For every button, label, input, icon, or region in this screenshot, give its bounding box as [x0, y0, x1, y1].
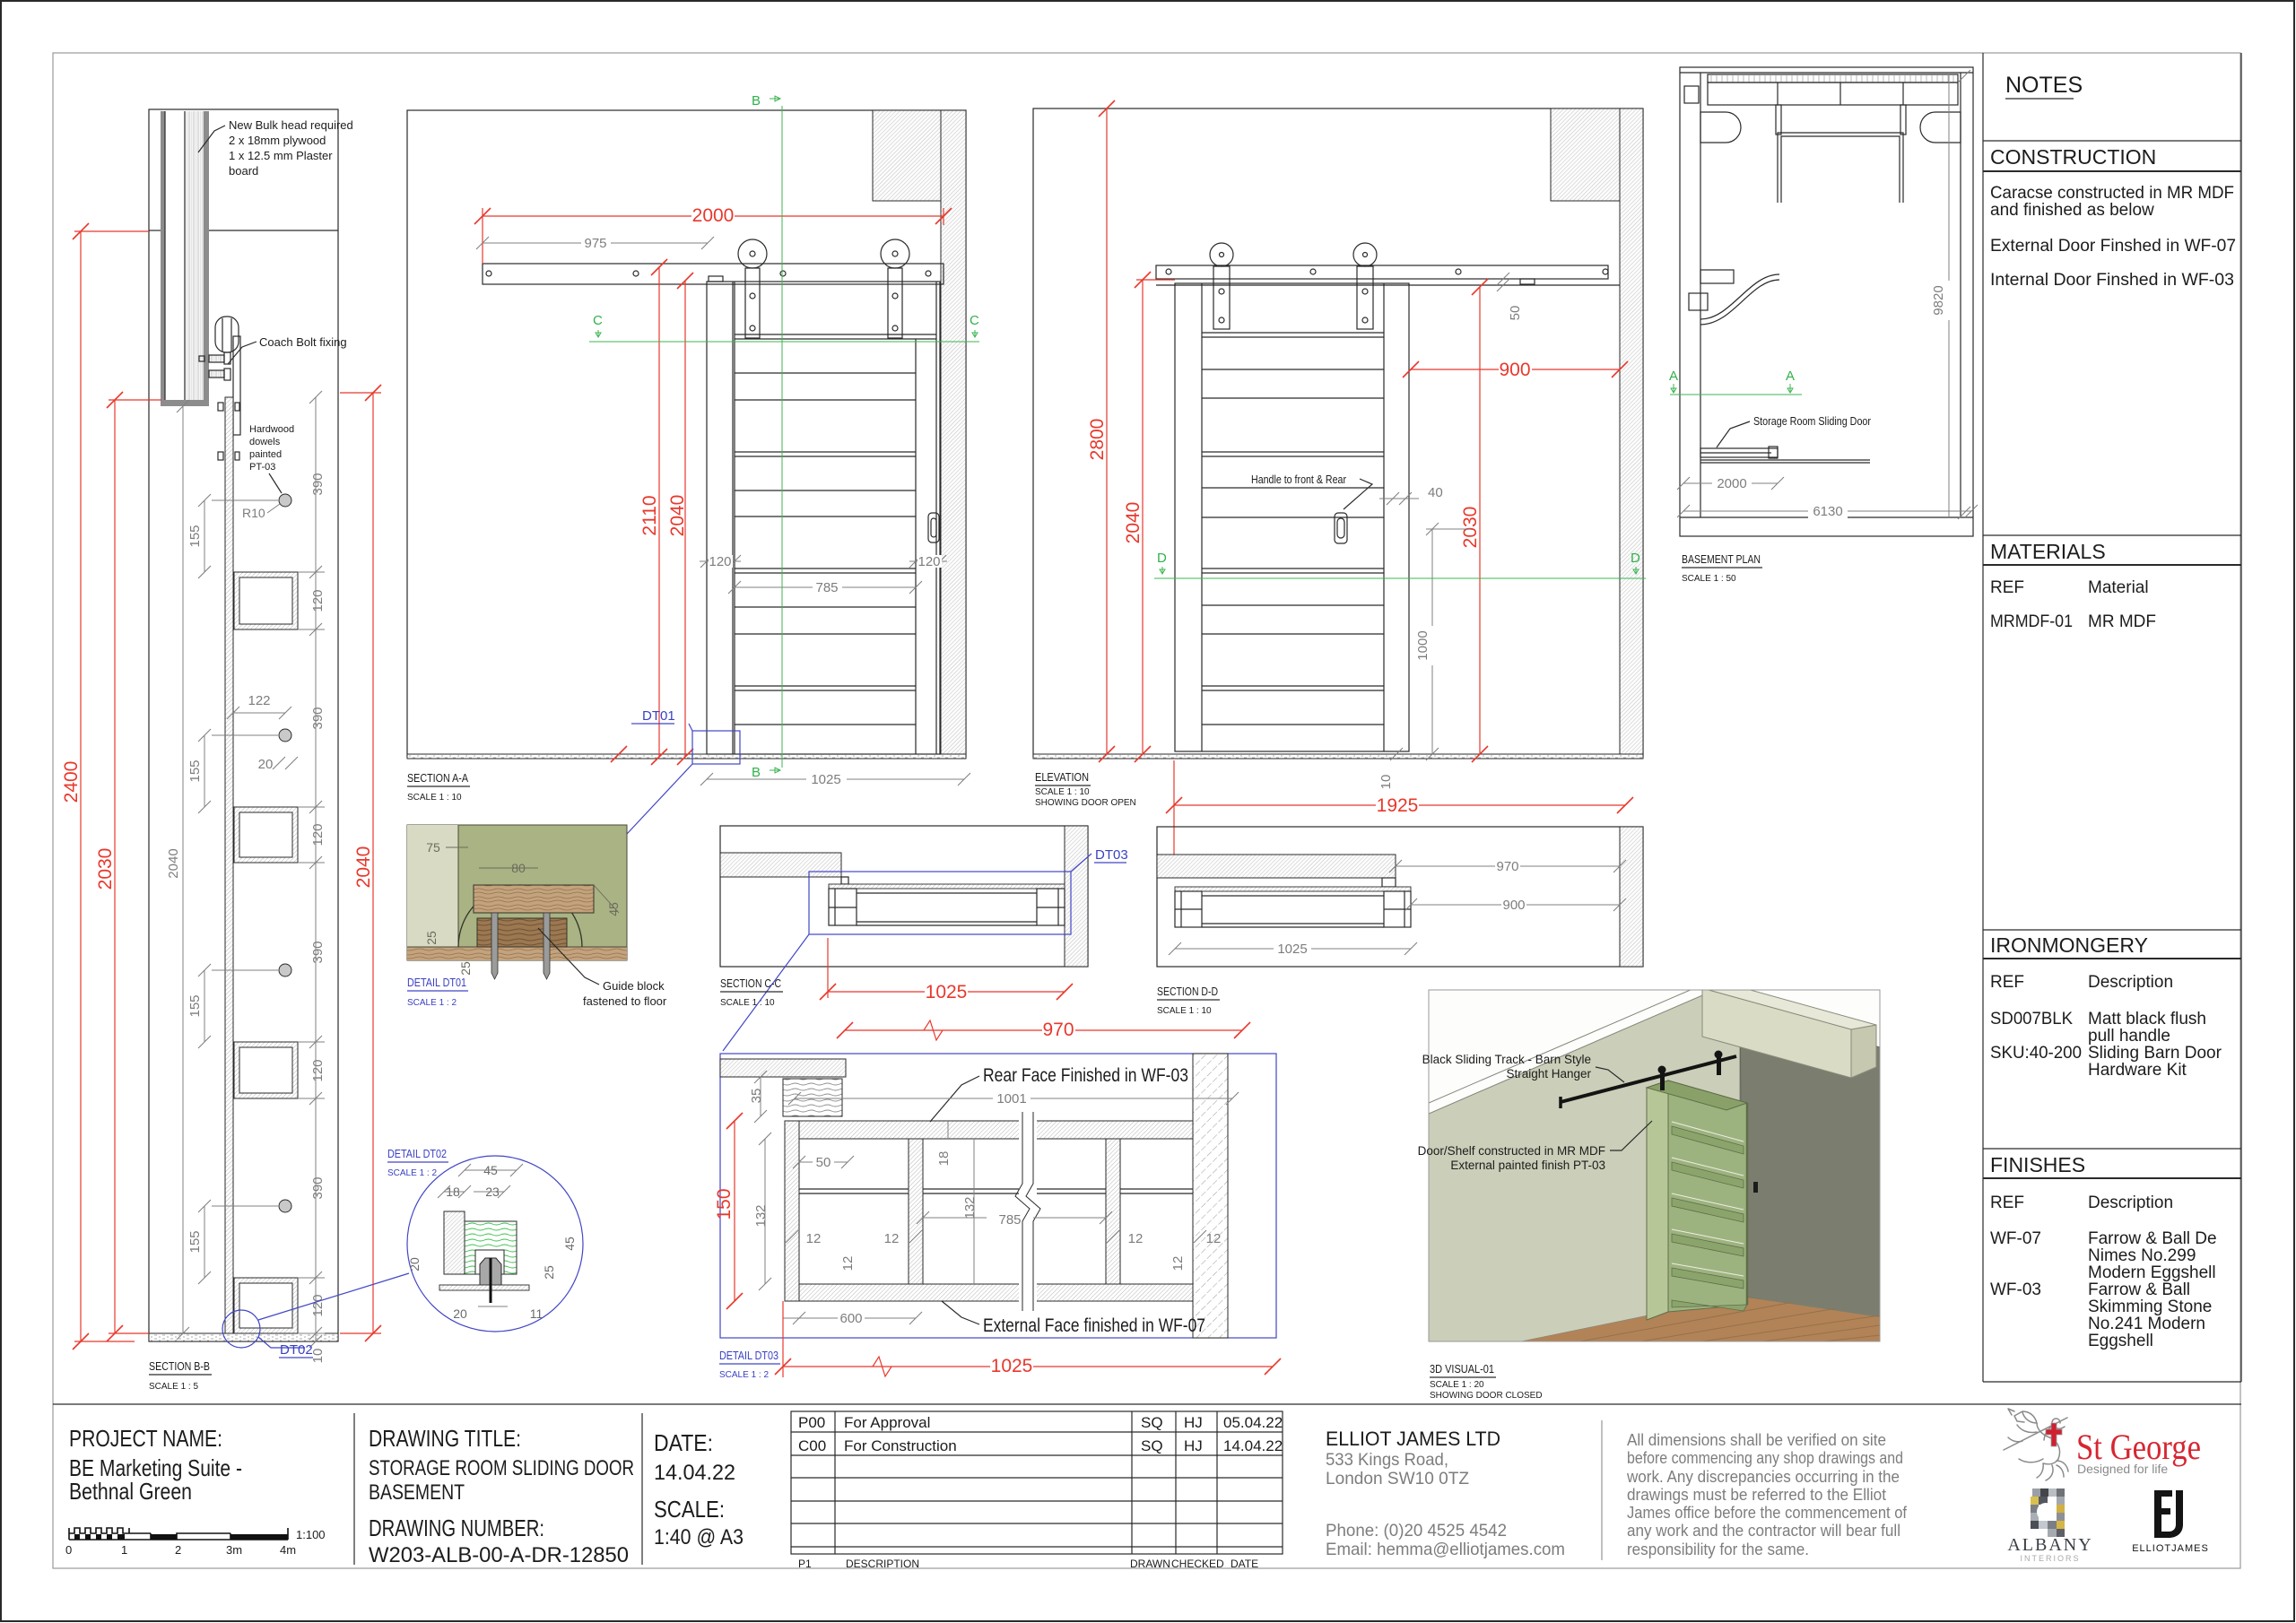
svg-text:pull handle: pull handle — [2088, 1027, 2170, 1046]
svg-text:and finished as below: and finished as below — [1990, 201, 2154, 220]
svg-text:2030: 2030 — [1460, 507, 1481, 549]
svg-text:1025: 1025 — [811, 772, 840, 787]
svg-text:Bethnal Green: Bethnal Green — [69, 1478, 192, 1505]
svg-text:SQ: SQ — [1141, 1414, 1163, 1431]
svg-text:responsibility for the same.: responsibility for the same. — [1627, 1540, 1809, 1558]
svg-text:DETAIL DT01: DETAIL DT01 — [407, 976, 466, 989]
svg-text:INTERIORS: INTERIORS — [2020, 1554, 2080, 1563]
svg-text:6130: 6130 — [1813, 504, 1842, 519]
svg-text:A: A — [1669, 369, 1678, 384]
svg-text:SCALE:: SCALE: — [654, 1496, 725, 1523]
svg-text:390: 390 — [310, 1176, 326, 1199]
svg-text:Coach Bolt fixing: Coach Bolt fixing — [259, 335, 347, 349]
svg-text:120: 120 — [310, 589, 326, 612]
svg-text:Email: hemma@elliotjames.com: Email: hemma@elliotjames.com — [1326, 1540, 1565, 1559]
svg-text:1:100: 1:100 — [296, 1528, 326, 1541]
svg-text:150: 150 — [714, 1188, 735, 1219]
svg-text:Material: Material — [2088, 578, 2149, 597]
svg-text:London SW10 0TZ: London SW10 0TZ — [1326, 1469, 1469, 1488]
svg-text:14.04.22: 14.04.22 — [654, 1461, 735, 1485]
svg-text:3D VISUAL-01: 3D VISUAL-01 — [1430, 1363, 1494, 1376]
svg-text:CONSTRUCTION: CONSTRUCTION — [1990, 145, 2156, 169]
svg-text:155: 155 — [187, 994, 203, 1017]
svg-text:BASEMENT: BASEMENT — [369, 1480, 465, 1505]
svg-text:SECTION D-D: SECTION D-D — [1157, 985, 1218, 998]
svg-text:25: 25 — [542, 1265, 556, 1280]
svg-text:2040: 2040 — [353, 846, 374, 889]
svg-text:REF: REF — [1990, 1193, 2024, 1212]
svg-text:Storage Room Sliding Door: Storage Room Sliding Door — [1753, 414, 1872, 428]
svg-text:Caracse constructed in MR MDF: Caracse constructed in MR MDF — [1990, 184, 2234, 203]
svg-text:SCALE 1 : 50: SCALE 1 : 50 — [1682, 574, 1736, 584]
svg-text:785: 785 — [998, 1212, 1021, 1228]
svg-text:WF-07: WF-07 — [1990, 1229, 2041, 1248]
svg-text:12: 12 — [1128, 1231, 1144, 1246]
svg-text:painted: painted — [249, 449, 282, 460]
svg-text:1 x 12.5 mm Plaster: 1 x 12.5 mm Plaster — [229, 149, 333, 162]
svg-text:For Approval: For Approval — [844, 1414, 930, 1431]
svg-text:MATERIALS: MATERIALS — [1990, 540, 2106, 563]
svg-text:970: 970 — [1496, 859, 1518, 874]
svg-text:2040: 2040 — [1123, 502, 1144, 544]
svg-text:390: 390 — [310, 941, 326, 963]
svg-text:155: 155 — [187, 525, 203, 547]
svg-text:DETAIL DT02: DETAIL DT02 — [387, 1148, 447, 1160]
svg-text:fastened to floor: fastened to floor — [583, 994, 667, 1008]
svg-text:Door/Shelf constructed in MR M: Door/Shelf constructed in MR MDF — [1418, 1144, 1605, 1158]
svg-text:work. Any discrepancies occurr: work. Any discrepancies occurring in the — [1626, 1467, 1900, 1486]
svg-text:1025: 1025 — [1277, 942, 1307, 957]
svg-text:18: 18 — [936, 1151, 952, 1167]
svg-text:Phone: (0)20 4525 4542: Phone: (0)20 4525 4542 — [1326, 1521, 1507, 1541]
svg-text:SECTION C-C: SECTION C-C — [720, 977, 781, 990]
svg-text:For Construction: For Construction — [844, 1437, 957, 1454]
svg-text:NOTES: NOTES — [2005, 73, 2083, 98]
svg-text:A: A — [1786, 369, 1795, 384]
svg-text:2000: 2000 — [1717, 476, 1746, 491]
svg-text:2040: 2040 — [166, 848, 181, 878]
svg-text:12: 12 — [806, 1231, 822, 1246]
svg-text:DRAWING NUMBER:: DRAWING NUMBER: — [369, 1515, 544, 1541]
svg-text:REF: REF — [1990, 973, 2024, 992]
svg-text:Farrow & Ball De: Farrow & Ball De — [2088, 1229, 2217, 1248]
svg-text:D: D — [1631, 551, 1640, 566]
svg-text:SCALE 1 : 20: SCALE 1 : 20 — [1430, 1380, 1484, 1390]
svg-text:before commencing any shop dra: before commencing any shop drawings and — [1627, 1448, 1903, 1467]
svg-text:2030: 2030 — [95, 848, 116, 890]
svg-text:40: 40 — [1428, 485, 1443, 500]
svg-text:Rear Face Finished in WF-03: Rear Face Finished in WF-03 — [983, 1065, 1188, 1086]
svg-text:P1: P1 — [798, 1558, 812, 1570]
svg-text:45: 45 — [562, 1237, 577, 1251]
svg-text:DESCRIPTION: DESCRIPTION — [846, 1558, 919, 1570]
svg-text:1000: 1000 — [1415, 630, 1431, 660]
svg-text:9820: 9820 — [1931, 285, 1946, 315]
svg-text:REF: REF — [1990, 578, 2024, 597]
svg-text:CHECKED: CHECKED — [1171, 1558, 1224, 1570]
svg-text:BASEMENT PLAN: BASEMENT PLAN — [1682, 553, 1761, 566]
svg-text:SCALE 1 : 10: SCALE 1 : 10 — [720, 998, 775, 1008]
svg-text:W203-ALB-00-A-DR-12850: W203-ALB-00-A-DR-12850 — [369, 1543, 629, 1567]
svg-text:533 Kings Road,: 533 Kings Road, — [1326, 1450, 1448, 1470]
svg-text:50: 50 — [1508, 306, 1523, 321]
svg-text:25: 25 — [458, 961, 473, 976]
svg-text:ALBANY: ALBANY — [2007, 1535, 2092, 1555]
svg-text:155: 155 — [187, 759, 203, 782]
svg-text:120: 120 — [310, 823, 326, 846]
svg-text:1025: 1025 — [926, 982, 968, 1002]
svg-text:SCALE 1 : 2: SCALE 1 : 2 — [719, 1370, 769, 1380]
svg-text:SHOWING DOOR OPEN: SHOWING DOOR OPEN — [1035, 798, 1136, 808]
svg-text:DT02: DT02 — [280, 1342, 313, 1358]
svg-text:Sliding Barn Door: Sliding Barn Door — [2088, 1044, 2222, 1063]
svg-text:IRONMONGERY: IRONMONGERY — [1990, 933, 2148, 957]
svg-text:ELLIOT JAMES LTD: ELLIOT JAMES LTD — [1326, 1428, 1500, 1450]
svg-text:B: B — [752, 765, 761, 780]
svg-text:SCALE 1 : 2: SCALE 1 : 2 — [407, 998, 457, 1008]
svg-text:DATE: DATE — [1231, 1558, 1258, 1570]
svg-text:SCALE 1 : 2: SCALE 1 : 2 — [387, 1168, 437, 1178]
svg-text:DRAWN: DRAWN — [1130, 1558, 1170, 1570]
svg-text:Internal Door Finshed in WF-03: Internal Door Finshed in WF-03 — [1990, 271, 2234, 290]
svg-text:SCALE 1 : 5: SCALE 1 : 5 — [149, 1382, 198, 1392]
svg-text:FINISHES: FINISHES — [1990, 1153, 2085, 1176]
svg-text:D: D — [1157, 551, 1167, 566]
svg-text:DATE:: DATE: — [654, 1429, 713, 1456]
svg-text:11: 11 — [530, 1306, 544, 1321]
svg-text:B: B — [752, 93, 761, 108]
svg-text:Description: Description — [2088, 973, 2173, 992]
svg-text:20: 20 — [453, 1306, 467, 1321]
svg-text:Matt black flush: Matt black flush — [2088, 1010, 2206, 1028]
svg-text:75: 75 — [426, 840, 440, 855]
svg-text:1: 1 — [121, 1543, 127, 1557]
svg-text:120: 120 — [709, 554, 731, 569]
svg-text:HJ: HJ — [1184, 1437, 1203, 1454]
svg-text:390: 390 — [310, 473, 326, 495]
svg-text:DT01: DT01 — [642, 708, 675, 724]
svg-text:SD007BLK: SD007BLK — [1990, 1010, 2073, 1028]
svg-text:Straight Hanger: Straight Hanger — [1506, 1067, 1591, 1081]
svg-text:14.04.22: 14.04.22 — [1223, 1437, 1283, 1454]
svg-text:SHOWING DOOR CLOSED: SHOWING DOOR CLOSED — [1430, 1391, 1543, 1401]
svg-text:Handle to front & Rear: Handle to front & Rear — [1251, 473, 1347, 486]
svg-text:390: 390 — [310, 707, 326, 729]
svg-text:Modern Eggshell: Modern Eggshell — [2088, 1263, 2216, 1282]
svg-text:ELLIOTJAMES: ELLIOTJAMES — [2132, 1543, 2209, 1554]
svg-text:SKU:40-200: SKU:40-200 — [1990, 1044, 2082, 1063]
svg-text:970: 970 — [1042, 1020, 1074, 1040]
svg-text:any work and the contractor wi: any work and the contractor will bear fu… — [1627, 1521, 1900, 1540]
svg-text:ELEVATION: ELEVATION — [1035, 771, 1089, 784]
svg-text:900: 900 — [1502, 898, 1525, 913]
svg-text:board: board — [229, 164, 258, 178]
svg-text:120: 120 — [310, 1059, 326, 1081]
svg-text:Skimming Stone: Skimming Stone — [2088, 1298, 2212, 1316]
svg-text:R10: R10 — [242, 506, 265, 520]
svg-text:SECTION A-A: SECTION A-A — [407, 772, 469, 785]
svg-text:785: 785 — [815, 580, 838, 595]
svg-text:25: 25 — [424, 931, 439, 945]
svg-text:MRMDF-01: MRMDF-01 — [1990, 612, 2073, 631]
svg-text:James office before the commen: James office before the commencement of — [1627, 1503, 1908, 1522]
svg-text:STORAGE ROOM SLIDING DOOR: STORAGE ROOM SLIDING DOOR — [369, 1456, 634, 1480]
svg-text:120: 120 — [918, 554, 940, 569]
svg-text:122: 122 — [248, 693, 270, 708]
svg-text:20: 20 — [407, 1257, 422, 1271]
svg-text:600: 600 — [839, 1311, 862, 1326]
svg-text:New Bulk head required: New Bulk head required — [229, 118, 353, 132]
svg-text:2040: 2040 — [667, 495, 688, 537]
svg-text:Nimes No.299: Nimes No.299 — [2088, 1246, 2196, 1265]
svg-text:PROJECT NAME:: PROJECT NAME: — [69, 1425, 222, 1452]
svg-text:2110: 2110 — [639, 495, 660, 535]
svg-text:SQ: SQ — [1141, 1437, 1163, 1454]
svg-text:No.241 Modern: No.241 Modern — [2088, 1315, 2205, 1333]
svg-text:SCALE 1 : 10: SCALE 1 : 10 — [1035, 787, 1090, 797]
svg-text:12: 12 — [840, 1256, 856, 1271]
svg-text:45: 45 — [606, 902, 621, 916]
svg-text:Designed for life: Designed for life — [2077, 1462, 2168, 1476]
svg-text:External Face finished in WF-0: External Face finished in WF-07 — [983, 1315, 1205, 1336]
svg-text:132: 132 — [753, 1204, 769, 1227]
svg-text:1925: 1925 — [1377, 795, 1419, 816]
svg-text:External Door Finshed in WF-07: External Door Finshed in WF-07 — [1990, 237, 2236, 256]
svg-text:Guide block: Guide block — [603, 979, 665, 993]
svg-text:HJ: HJ — [1184, 1414, 1203, 1431]
svg-text:0: 0 — [65, 1543, 72, 1557]
svg-text:2400: 2400 — [61, 761, 82, 803]
svg-text:1001: 1001 — [996, 1091, 1026, 1107]
svg-text:975: 975 — [584, 236, 606, 251]
svg-text:10: 10 — [1378, 775, 1394, 790]
svg-text:1025: 1025 — [991, 1356, 1033, 1376]
svg-text:Description: Description — [2088, 1193, 2173, 1212]
svg-text:2000: 2000 — [692, 205, 735, 226]
svg-text:WF-03: WF-03 — [1990, 1280, 2041, 1299]
svg-text:All dimensions shall be verifi: All dimensions shall be verified on site — [1627, 1430, 1886, 1449]
svg-text:C: C — [593, 313, 603, 328]
svg-text:C: C — [970, 313, 979, 328]
svg-text:External painted finish PT-03: External painted finish PT-03 — [1450, 1159, 1605, 1172]
svg-text:DT03: DT03 — [1095, 847, 1128, 863]
svg-text:DRAWING TITLE:: DRAWING TITLE: — [369, 1425, 521, 1452]
svg-text:35: 35 — [749, 1089, 764, 1104]
svg-text:20: 20 — [258, 757, 274, 772]
svg-text:P00: P00 — [798, 1414, 825, 1431]
svg-text:132: 132 — [962, 1196, 978, 1219]
svg-text:Farrow & Ball: Farrow & Ball — [2088, 1280, 2190, 1299]
svg-text:SECTION B-B: SECTION B-B — [149, 1360, 210, 1373]
svg-text:DETAIL DT03: DETAIL DT03 — [719, 1350, 778, 1362]
svg-text:12: 12 — [1206, 1231, 1222, 1246]
svg-text:2 x 18mm plywood: 2 x 18mm plywood — [229, 134, 326, 147]
svg-text:Hardware Kit: Hardware Kit — [2088, 1061, 2187, 1080]
svg-text:C00: C00 — [798, 1437, 826, 1454]
svg-text:Black Sliding Track - Barn Sty: Black Sliding Track - Barn Style — [1422, 1053, 1591, 1066]
svg-text:05.04.22: 05.04.22 — [1223, 1414, 1283, 1431]
svg-text:120: 120 — [310, 1294, 326, 1316]
svg-text:Eggshell: Eggshell — [2088, 1332, 2153, 1350]
svg-text:SCALE 1 : 10: SCALE 1 : 10 — [1157, 1006, 1212, 1016]
svg-text:dowels: dowels — [249, 437, 281, 447]
svg-text:50: 50 — [816, 1155, 831, 1170]
svg-text:1:40 @ A3: 1:40 @ A3 — [654, 1525, 744, 1549]
svg-text:SCALE 1 : 10: SCALE 1 : 10 — [407, 793, 462, 803]
svg-text:3m: 3m — [226, 1543, 242, 1557]
svg-text:Hardwood: Hardwood — [249, 424, 294, 435]
svg-text:2: 2 — [175, 1543, 181, 1557]
svg-text:900: 900 — [1499, 360, 1530, 380]
svg-text:155: 155 — [187, 1230, 203, 1253]
svg-text:12: 12 — [1170, 1256, 1186, 1271]
svg-text:MR MDF: MR MDF — [2088, 612, 2156, 631]
svg-text:2800: 2800 — [1087, 419, 1108, 461]
svg-text:4m: 4m — [280, 1543, 296, 1557]
svg-text:12: 12 — [884, 1231, 900, 1246]
svg-text:PT-03: PT-03 — [249, 462, 275, 473]
svg-text:drawings must be referred to t: drawings must be referred to the Elliot — [1627, 1485, 1886, 1504]
